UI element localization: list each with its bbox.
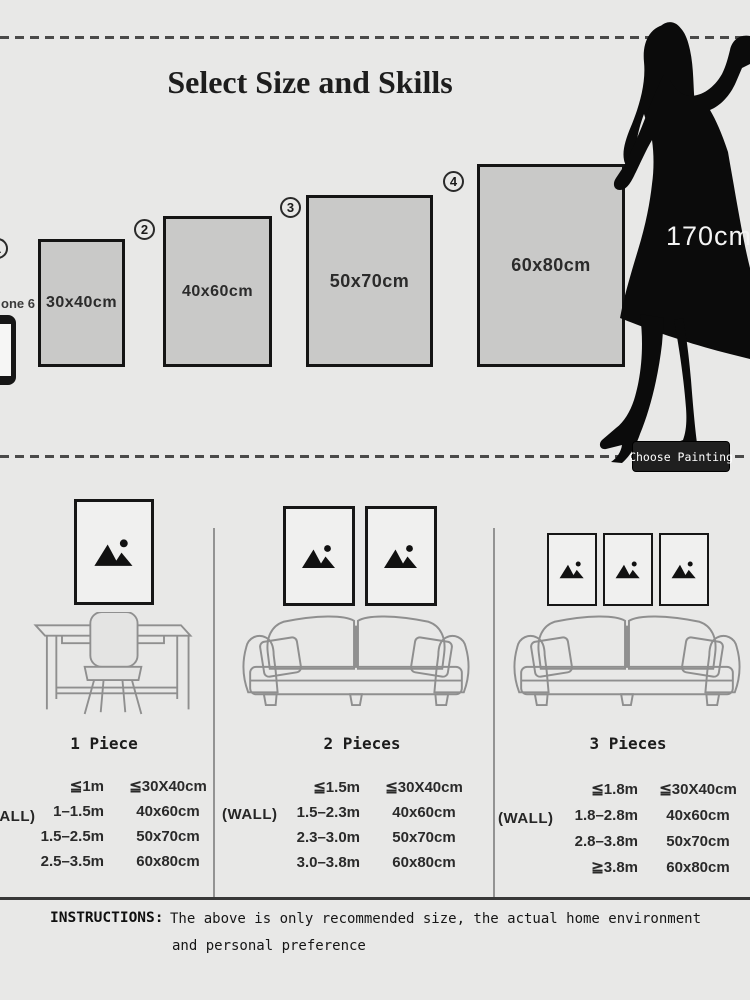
wall-width-cell: 1.8–2.8m (548, 803, 638, 829)
table2-wall-label: (WALL) (222, 806, 277, 823)
wall-width-cell: 3.0–3.8m (272, 850, 360, 875)
size-option-40x60[interactable]: 40x60cm (163, 216, 272, 367)
wall-width-cell: 1.5–2.5m (26, 824, 104, 849)
scene3-frame-2 (603, 533, 653, 606)
scene3-frame-1 (547, 533, 597, 606)
option-4-number: 4 (443, 171, 464, 192)
option-3-number: 3 (280, 197, 301, 218)
phone-screen (0, 324, 11, 376)
wall-width-cell: ≦1m (26, 774, 104, 799)
size-option-50x70[interactable]: 50x70cm (306, 195, 433, 367)
option-2-number: 2 (134, 219, 155, 240)
phone-image (0, 315, 16, 385)
scene2-label: 2 Pieces (282, 734, 442, 753)
table3-wall-label: (WALL) (498, 810, 553, 827)
desk-chair-drawing (28, 612, 198, 716)
wall-width-cell: ≦1.8m (548, 777, 638, 803)
size-guide-infographic: Select Size and Skills one 6 1 2 3 4 30x… (0, 0, 750, 1000)
instructions-text-line1: The above is only recommended size, the … (170, 911, 701, 927)
image-placeholder-icon (92, 537, 136, 567)
wall-width-cell: ≦1.5m (272, 775, 360, 800)
wall-width-cell: ≧3.8m (548, 855, 638, 881)
scene1-frame (74, 499, 154, 605)
size-cell: 40x60cm (650, 803, 746, 829)
image-placeholder-icon (558, 560, 586, 579)
image-placeholder-icon (300, 543, 338, 569)
size-cell: 50x70cm (650, 829, 746, 855)
image-placeholder-icon (614, 560, 642, 579)
wall-width-cell: 2.8–3.8m (548, 829, 638, 855)
size-cell: 60x80cm (118, 849, 218, 874)
image-placeholder-icon (382, 543, 420, 569)
scene2-frame-1 (283, 506, 355, 606)
scene3-frame-3 (659, 533, 709, 606)
size-cell: 60x80cm (374, 850, 474, 875)
table2: ≦1.5m≦30X40cm 1.5–2.3m40x60cm 2.3–3.0m50… (272, 775, 474, 875)
size-cell: 40x60cm (374, 800, 474, 825)
divider-2 (493, 528, 495, 897)
wall-width-cell: 2.5–3.5m (26, 849, 104, 874)
scene2-frame-2 (365, 506, 437, 606)
image-placeholder-icon (670, 560, 698, 579)
wall-width-cell: 1.5–2.3m (272, 800, 360, 825)
wall-width-cell: 2.3–3.0m (272, 825, 360, 850)
sofa-drawing (238, 610, 474, 708)
size-cell: 60x80cm (650, 855, 746, 881)
instructions-text-line2: and personal preference (172, 938, 366, 954)
page-title: Select Size and Skills (0, 64, 620, 101)
model-height-label: 170cm (666, 221, 750, 252)
scene3-label: 3 Pieces (548, 734, 708, 753)
wall-width-cell: 1–1.5m (26, 799, 104, 824)
scene1-label: 1 Piece (24, 734, 184, 753)
option-1-number: 1 (0, 238, 8, 259)
size-cell: 50x70cm (374, 825, 474, 850)
size-cell: ≦30X40cm (374, 775, 474, 800)
table1: ≦1m≦30X40cm 1–1.5m40x60cm 1.5–2.5m50x70c… (26, 774, 218, 874)
size-cell: 50x70cm (118, 824, 218, 849)
size-cell: ≦30X40cm (118, 774, 218, 799)
size-cell: 40x60cm (118, 799, 218, 824)
sofa-drawing (506, 610, 748, 708)
size-cell: ≦30X40cm (650, 777, 746, 803)
instructions-label: INSTRUCTIONS: (50, 910, 164, 926)
size-option-30x40[interactable]: 30x40cm (38, 239, 125, 367)
choose-painting-button[interactable]: Choose Painting (632, 441, 730, 472)
bottom-rule (0, 897, 750, 900)
table3: ≦1.8m≦30X40cm 1.8–2.8m40x60cm 2.8–3.8m50… (548, 777, 746, 881)
phone-label: one 6 (1, 296, 35, 311)
